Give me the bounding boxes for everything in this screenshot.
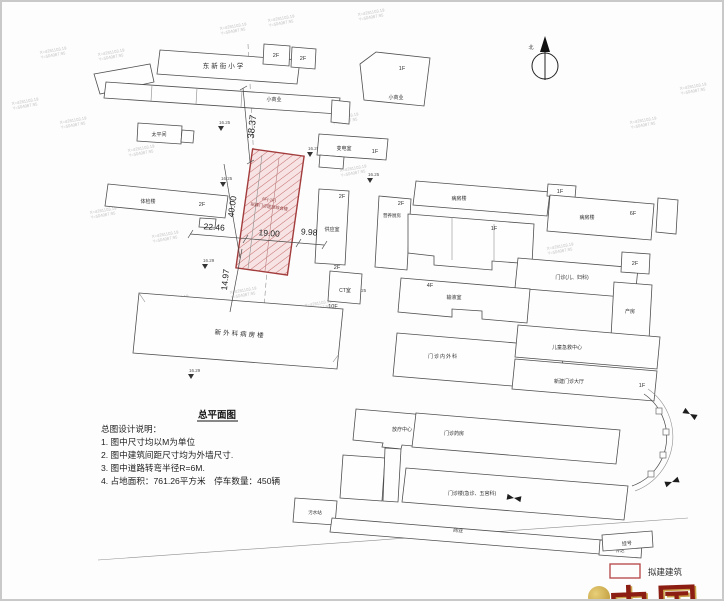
label-registration: 挂号 bbox=[622, 540, 632, 548]
svg-text:16.25: 16.25 bbox=[219, 120, 231, 125]
title-block: 总平面图 总图设计说明： 1. 图中尺寸均以M为单位 2. 图中建筑间距尺寸均为… bbox=[101, 409, 280, 486]
label-outpatient-int: 门诊内外科 bbox=[428, 353, 458, 360]
dim-40-00: 40.00 bbox=[226, 195, 239, 218]
svg-text:X=4281103.19Y=504087.95: X=4281103.19Y=504087.95 bbox=[546, 241, 575, 255]
building-supply: 2F 供应室 bbox=[315, 189, 349, 265]
svg-text:X=4281103.19Y=504087.95: X=4281103.19Y=504087.95 bbox=[39, 45, 68, 59]
floor-tag: 1F bbox=[372, 149, 379, 155]
dim-19-00: 19.00 bbox=[258, 227, 280, 238]
plan-title: 总平面图 bbox=[198, 409, 236, 421]
label-ward-center: 病房楼 bbox=[451, 195, 466, 202]
label-commerce: 商业 bbox=[453, 527, 463, 535]
svg-text:16.29: 16.29 bbox=[203, 258, 215, 263]
svg-text:16.25: 16.25 bbox=[368, 172, 380, 177]
label-children-emergency: 儿童急救中心 bbox=[552, 344, 582, 351]
building-registration: 挂号 bbox=[602, 531, 653, 551]
building-nutrition: 2F 营养厨房 bbox=[375, 196, 411, 270]
proposed-building: 6F(-1F) 拟建门诊医技综合楼 bbox=[236, 149, 304, 275]
label-ct: CT室 bbox=[339, 287, 351, 294]
svg-text:16.29: 16.29 bbox=[189, 368, 201, 373]
floor-tag: 2F bbox=[398, 201, 405, 207]
note-line-3: 3. 图中道路转弯半径R=6M. bbox=[101, 462, 205, 473]
note-line-1: 1. 图中尺寸均以M为单位 bbox=[101, 436, 195, 447]
floor-tag: 2F bbox=[632, 261, 639, 267]
building-morgue: 太平间 bbox=[137, 123, 194, 144]
dim-9-98: 9.98 bbox=[301, 226, 318, 237]
site-plan-drawing: X=4281103.19Y=504087.95X=4281103.19Y=504… bbox=[2, 2, 724, 601]
building-school: 东新街小学 2F 2F bbox=[157, 44, 316, 84]
floor-tag: 2F bbox=[300, 56, 307, 62]
note-line-4: 4. 占地面积：761.26平方米 停车数量：450辆 bbox=[101, 475, 280, 486]
survey-coordinate-labels: X=4281103.19Y=504087.95X=4281103.19Y=504… bbox=[11, 7, 708, 359]
floor-tag: 1F bbox=[491, 226, 498, 232]
label-outpatient-er: 门诊楼(急诊、五官科) bbox=[448, 490, 497, 497]
building-small-business-strip: 小商业 bbox=[104, 82, 350, 124]
floor-tag: 2F bbox=[334, 265, 341, 271]
svg-text:X=4281103.19Y=504087.95: X=4281103.19Y=504087.95 bbox=[357, 7, 386, 21]
label-delivery: 产房 bbox=[625, 308, 635, 315]
floor-tag: 1F bbox=[557, 189, 564, 195]
svg-text:X=4281103.19Y=504087.95: X=4281103.19Y=504087.95 bbox=[89, 205, 118, 219]
dim-38-37: 38.37 bbox=[246, 114, 259, 139]
building-outpatient-er: 门诊楼(急诊、五官科) bbox=[402, 468, 628, 520]
svg-text:X=4281103.19Y=504087.95: X=4281103.19Y=504087.95 bbox=[679, 81, 708, 95]
svg-text:X=4281103.19Y=504087.95: X=4281103.19Y=504087.95 bbox=[127, 143, 156, 157]
dim-14-97: 14.97 bbox=[219, 268, 231, 290]
label-pharmacy: 门诊药房 bbox=[444, 430, 464, 437]
label-sewage: 污水站 bbox=[308, 509, 322, 516]
svg-text:X=4281103.19Y=504087.95: X=4281103.19Y=504087.95 bbox=[629, 115, 658, 129]
notes-heading: 总图设计说明： bbox=[101, 423, 161, 434]
floor-tag: 6F bbox=[630, 211, 637, 217]
label-outpatient-ped: 门诊(儿、妇科) bbox=[555, 274, 589, 281]
floor-tag: 2F bbox=[199, 202, 206, 208]
label-outpatient-hall: 新建门诊大厅 bbox=[554, 378, 584, 385]
svg-text:X=4281103.19Y=504087.95: X=4281103.19Y=504087.95 bbox=[59, 115, 88, 129]
label-infusion: 输液室 bbox=[446, 294, 461, 301]
north-arrow: 北 bbox=[528, 36, 558, 80]
building-delivery: 产房 bbox=[611, 282, 652, 340]
north-arrowhead bbox=[540, 36, 550, 52]
building-commerce: 商业 传达 bbox=[330, 518, 642, 558]
north-label: 北 bbox=[528, 44, 533, 51]
label-exam: 体检楼 bbox=[140, 198, 155, 205]
floor-tag: 2F bbox=[273, 53, 280, 59]
svg-text:X=4281103.19Y=504087.95: X=4281103.19Y=504087.95 bbox=[97, 47, 126, 61]
label-morgue: 太平间 bbox=[151, 131, 166, 138]
label-school: 东新街小学 bbox=[203, 61, 246, 70]
building-ct: 2F CT室 bbox=[328, 265, 362, 304]
building-sewage: 污水站 bbox=[293, 498, 337, 525]
building-infusion: 4F 输液室 bbox=[398, 278, 530, 323]
svg-text:X=4281103.19Y=504087.95: X=4281103.19Y=504087.95 bbox=[219, 21, 248, 35]
building-small-business-corner: 1F 小商业 bbox=[360, 52, 430, 106]
building-ward-right: 1F 病房楼 6F bbox=[547, 184, 678, 240]
floor-tag: 1F bbox=[639, 383, 646, 389]
gate-symbol bbox=[664, 477, 679, 487]
building-transformer: 变电室 1F bbox=[317, 134, 388, 169]
floor-tag: 4F bbox=[427, 283, 434, 289]
floor-tag: 1F bbox=[399, 66, 406, 72]
note-line-2: 2. 图中建筑间距尺寸均为外墙尺寸. bbox=[101, 449, 233, 460]
label-small-business: 小商业 bbox=[266, 96, 281, 103]
floor-tag: 10F bbox=[328, 304, 338, 310]
building-ward-center: 病房楼 1F bbox=[408, 181, 550, 270]
proposed-building-outline bbox=[236, 149, 304, 275]
label-transformer: 变电室 bbox=[336, 145, 351, 152]
label-radiotherapy: 放疗中心 bbox=[392, 426, 412, 433]
svg-text:X=4281103.19Y=504087.95: X=4281103.19Y=504087.95 bbox=[11, 96, 40, 110]
svg-text:X=4281103.19Y=504087.95: X=4281103.19Y=504087.95 bbox=[267, 13, 296, 27]
building-pharmacy: 门诊药房 bbox=[412, 413, 620, 464]
label-supply: 供应室 bbox=[324, 226, 339, 233]
gate-symbol bbox=[682, 408, 697, 420]
label-ward-right: 病房楼 bbox=[579, 214, 594, 221]
dim-22-46: 22.46 bbox=[203, 221, 225, 232]
label-small-business-corner: 小商业 bbox=[388, 94, 403, 101]
svg-text:X=4281103.19Y=504087.95: X=4281103.19Y=504087.95 bbox=[151, 229, 180, 243]
label-nutrition: 营养厨房 bbox=[383, 212, 401, 219]
site-plan-page: X=4281103.19Y=504087.95X=4281103.19Y=504… bbox=[0, 0, 724, 601]
floor-tag: 2F bbox=[339, 194, 346, 200]
